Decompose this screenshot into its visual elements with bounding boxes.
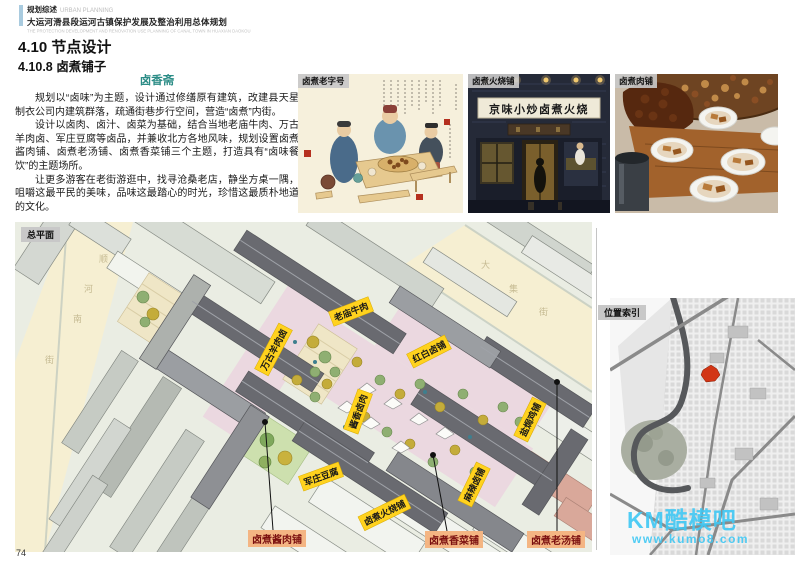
photo-roupu-illustration xyxy=(615,74,778,213)
article-paragraph-1: 规划以“卤味”为主题，设计通过修缮原有建筑，改建县天星制衣公司内建筑群落，疏通街… xyxy=(15,92,299,119)
article-heading: 卤香斋 xyxy=(15,72,299,88)
svg-text:南: 南 xyxy=(73,313,82,324)
article-paragraph-2: 设计以卤肉、卤汁、卤菜为基础，结合当地老庙牛肉、万古羊肉卤、军庄豆腐等卤品，并兼… xyxy=(15,119,299,173)
svg-text:大: 大 xyxy=(481,259,490,270)
photo-roupu-label: 卤煮肉铺 xyxy=(615,74,657,88)
photo-laozihao: 卤煮老字号 xyxy=(298,74,463,213)
theme-label-jiangroupu: 卤煮酱肉铺 xyxy=(248,530,306,547)
header: 规划综述URBAN PLANNING 大运河滑县段运河古镇保护发展及整治利用总体… xyxy=(27,4,387,35)
watermark-brand: KM酷模吧 xyxy=(627,501,737,535)
svg-text:河: 河 xyxy=(84,283,93,294)
photo-roupu: 卤煮肉铺 xyxy=(615,74,778,213)
header-category-en: URBAN PLANNING xyxy=(60,8,113,14)
header-category-cn: 规划综述 xyxy=(27,5,57,14)
page-number: 74 xyxy=(16,548,26,558)
photo-huoshaopu-label: 卤煮火烧铺 xyxy=(468,74,519,88)
header-category: 规划综述URBAN PLANNING xyxy=(27,4,387,15)
dark-pot xyxy=(615,152,649,211)
column-divider xyxy=(596,228,597,550)
article-paragraph-3: 让更多游客在老街游逛中，找寻沧桑老店，静坐方桌一隅，咀嚼这最平民的美味，品味这最… xyxy=(15,174,299,215)
svg-text:街: 街 xyxy=(539,306,548,317)
article-column: 卤香斋 规划以“卤味”为主题，设计通过修缮原有建筑，改建县天星制衣公司内建筑群落… xyxy=(15,72,299,214)
doorway xyxy=(522,140,558,200)
site-plan-drawing: 顺 河 南 街 大 集 街 xyxy=(15,222,592,552)
svg-text:集: 集 xyxy=(509,283,518,294)
svg-text:顺: 顺 xyxy=(99,254,108,264)
document-page: { "header": { "category_cn": "规划综述", "ca… xyxy=(0,0,800,566)
photo-huoshaopu-illustration: 京味小炒卤煮火烧 xyxy=(468,74,610,213)
header-title-en: THE PROTECTION DEVELOPMENT AND RENOVATIO… xyxy=(27,29,333,34)
wood-plaque xyxy=(508,124,570,135)
left-window xyxy=(480,142,514,184)
photo-huoshaopu: 卤煮火烧铺 京味小炒卤煮火烧 xyxy=(468,74,610,213)
right-window xyxy=(564,142,598,186)
site-plan: 顺 河 南 街 大 集 街 xyxy=(15,222,592,552)
watermark-url: www.kumo8.com xyxy=(632,532,749,546)
theme-label-xiangcaipu: 卤煮香菜铺 xyxy=(425,531,483,548)
shop-sign-text: 京味小炒卤煮火烧 xyxy=(489,102,589,116)
photo-laozihao-label: 卤煮老字号 xyxy=(298,74,349,88)
svg-text:街: 街 xyxy=(45,354,54,365)
header-title-cn: 大运河滑县段运河古镇保护发展及整治利用总体规划 xyxy=(27,16,387,28)
street-ground xyxy=(468,200,610,213)
site-plan-tag: 总平面 xyxy=(21,227,60,242)
park-blob xyxy=(621,420,687,480)
section-title: 4.10 节点设计 xyxy=(18,36,111,57)
index-map-tag: 位置索引 xyxy=(598,305,646,320)
photo-laozihao-illustration xyxy=(298,74,463,213)
theme-label-laotangpu: 卤煮老汤铺 xyxy=(527,531,585,548)
header-accent-bar xyxy=(19,5,23,26)
